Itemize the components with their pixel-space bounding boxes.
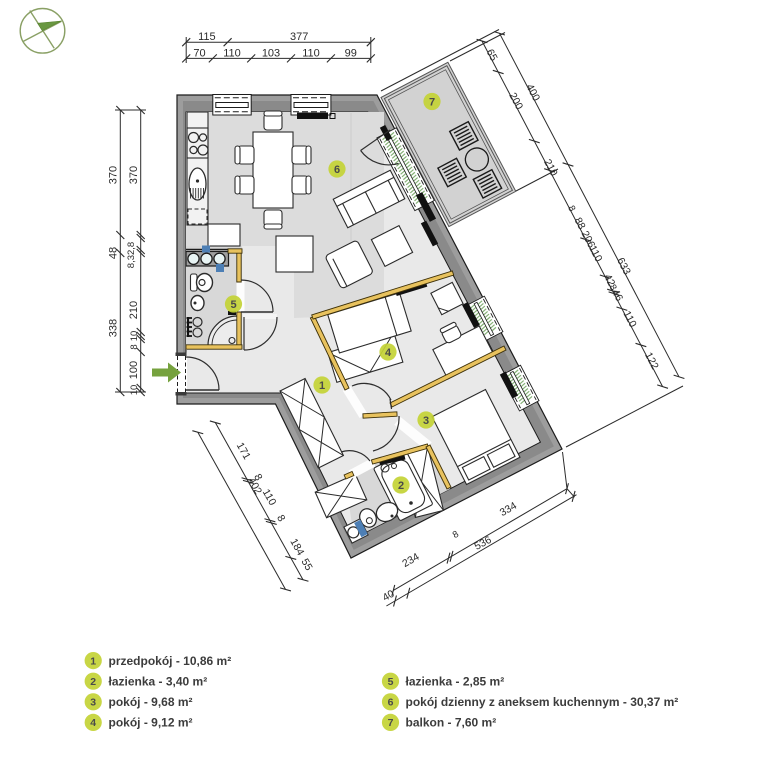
svg-text:370: 370	[108, 166, 120, 184]
svg-text:110: 110	[302, 47, 320, 59]
svg-text:103: 103	[262, 47, 280, 59]
svg-text:100: 100	[128, 361, 140, 379]
svg-text:1: 1	[90, 655, 96, 667]
svg-text:3: 3	[423, 415, 429, 427]
svg-text:4: 4	[90, 717, 96, 729]
svg-text:6: 6	[388, 697, 394, 709]
svg-text:8: 8	[129, 344, 140, 349]
svg-text:338: 338	[108, 319, 120, 337]
svg-text:przedpokój - 10,86 m²: przedpokój - 10,86 m²	[109, 654, 232, 668]
svg-text:10: 10	[129, 385, 140, 396]
svg-text:8,32,8: 8,32,8	[126, 242, 137, 268]
svg-text:7: 7	[388, 717, 394, 729]
svg-text:7: 7	[429, 97, 435, 109]
svg-text:pokój - 9,12 m²: pokój - 9,12 m²	[109, 716, 193, 730]
svg-text:5: 5	[230, 299, 236, 311]
svg-text:370: 370	[128, 166, 140, 184]
svg-text:pokój - 9,68 m²: pokój - 9,68 m²	[109, 695, 193, 709]
svg-text:5: 5	[388, 676, 394, 688]
svg-text:210: 210	[128, 301, 140, 319]
svg-text:10: 10	[129, 331, 140, 342]
svg-text:2: 2	[90, 676, 96, 688]
svg-text:pokój dzienny z aneksem kuchen: pokój dzienny z aneksem kuchennym - 30,3…	[406, 695, 679, 709]
svg-text:1: 1	[319, 380, 325, 392]
svg-text:6: 6	[334, 164, 340, 176]
svg-text:377: 377	[290, 31, 308, 43]
svg-text:4: 4	[385, 347, 392, 359]
svg-text:łazienka - 3,40 m²: łazienka - 3,40 m²	[109, 675, 208, 689]
svg-text:3: 3	[90, 697, 96, 709]
svg-text:99: 99	[345, 47, 357, 59]
svg-text:łazienka - 2,85 m²: łazienka - 2,85 m²	[406, 675, 505, 689]
svg-text:48: 48	[108, 247, 120, 259]
svg-text:balkon - 7,60 m²: balkon - 7,60 m²	[406, 716, 497, 730]
svg-text:110: 110	[223, 47, 241, 59]
svg-text:115: 115	[198, 31, 216, 43]
svg-text:70: 70	[193, 47, 205, 59]
svg-text:2: 2	[398, 480, 404, 492]
